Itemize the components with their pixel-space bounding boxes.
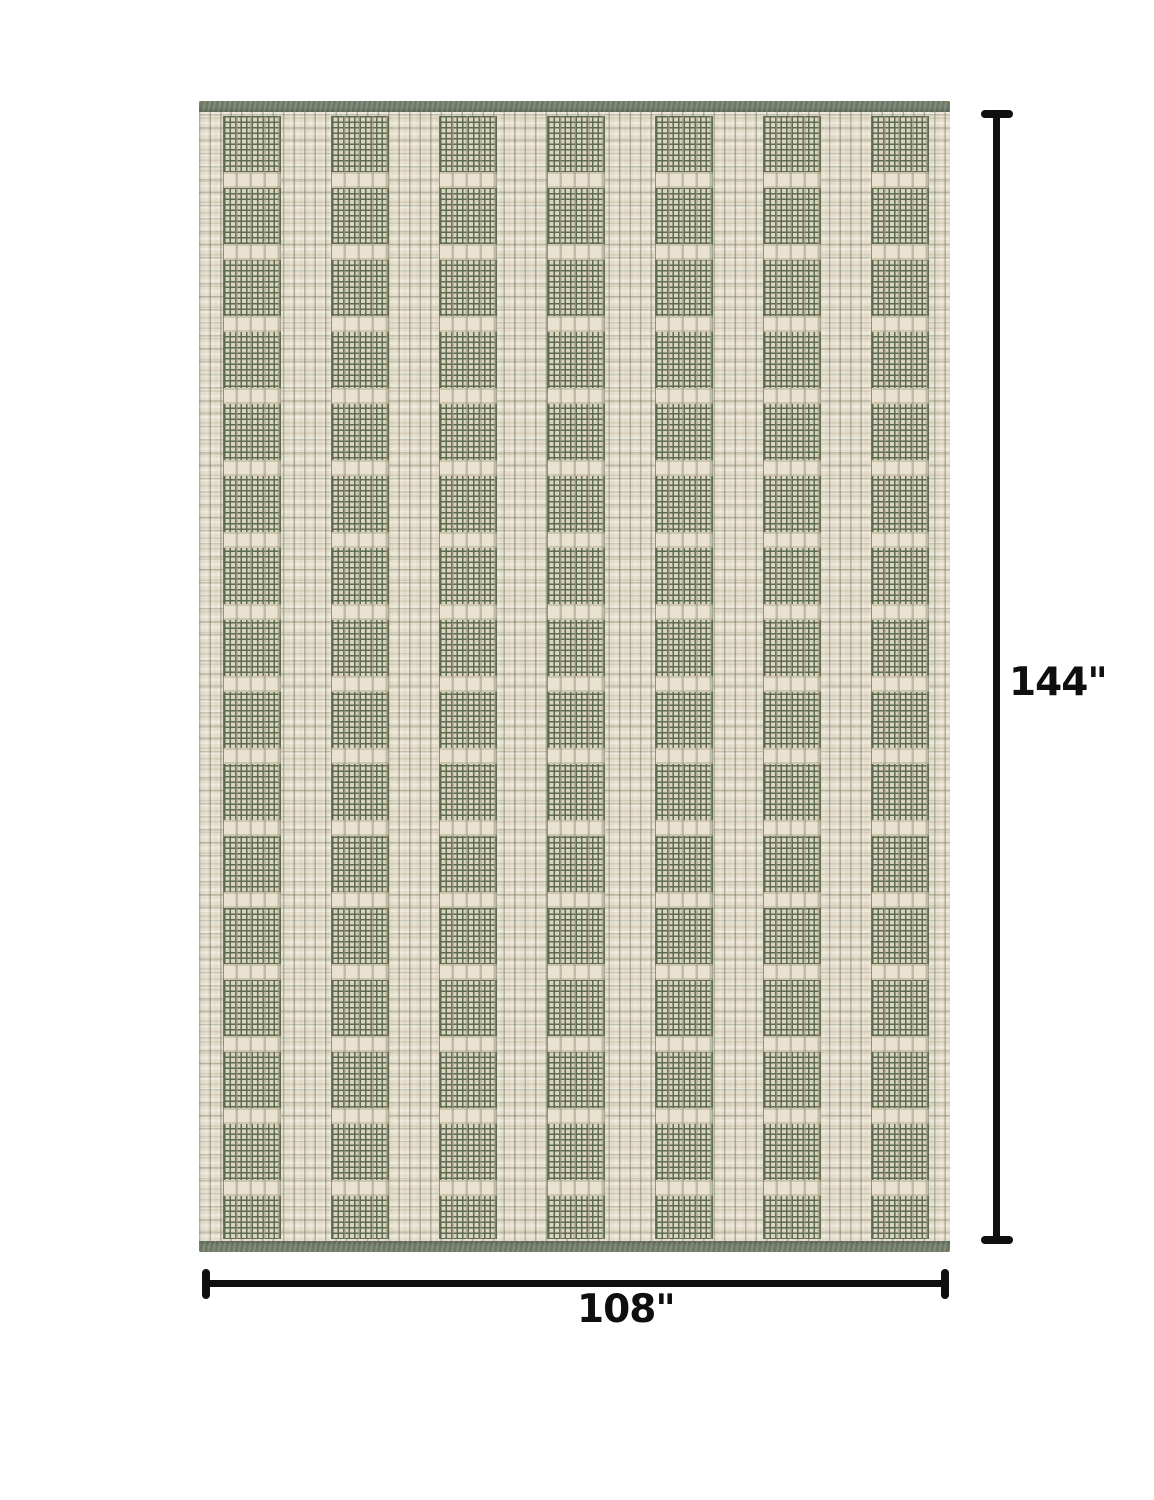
rug-green-stripe [655, 116, 713, 1239]
width-dimension-left-cap [202, 1269, 210, 1299]
rug-pattern [199, 101, 950, 1252]
height-dimension-bottom-cap [981, 1236, 1013, 1244]
rug-green-stripe [439, 116, 497, 1239]
rug-top-binding [199, 101, 950, 112]
product-dimension-image: 144" 108" [0, 0, 1154, 1500]
height-dimension-line [993, 111, 1000, 1243]
rug-green-stripe [331, 116, 389, 1239]
height-dimension-label: 144" [1009, 663, 1107, 702]
rug-green-stripe [763, 116, 821, 1239]
width-dimension-label: 108" [577, 1290, 675, 1329]
rug-photo [199, 101, 950, 1252]
height-dimension-top-cap [981, 110, 1013, 118]
rug-green-stripe [547, 116, 605, 1239]
rug-bottom-binding [199, 1241, 950, 1252]
rug-green-stripe [871, 116, 929, 1239]
width-dimension-right-cap [941, 1269, 949, 1299]
width-dimension-line [203, 1280, 948, 1287]
rug-green-stripe [223, 116, 281, 1239]
